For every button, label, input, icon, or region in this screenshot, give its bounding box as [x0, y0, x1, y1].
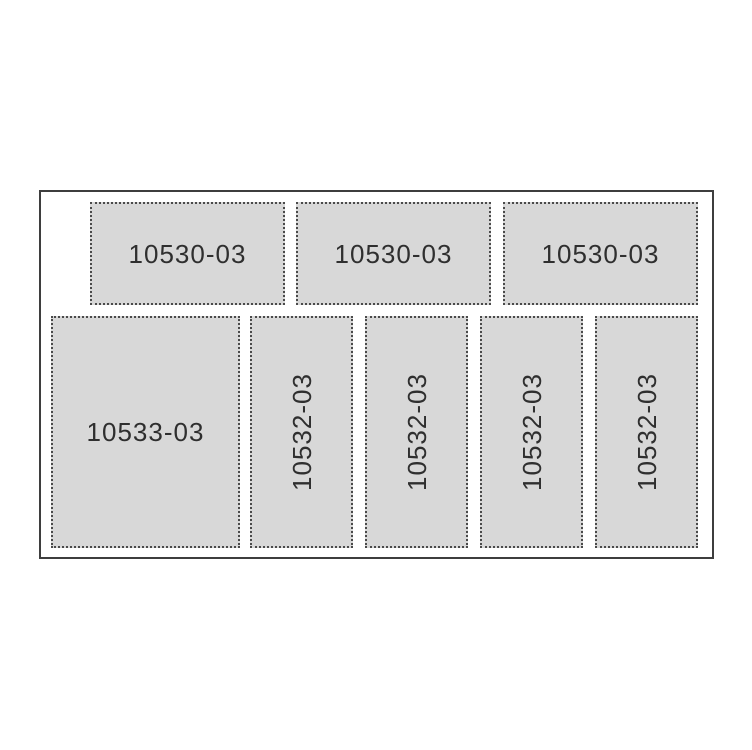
part-box-10532-3: 10532-03 — [480, 316, 583, 548]
part-box-10530-1: 10530-03 — [90, 202, 285, 305]
part-number-label: 10530-03 — [542, 241, 660, 267]
part-box-10533: 10533-03 — [51, 316, 240, 548]
part-number-label: 10530-03 — [335, 241, 453, 267]
part-number-label: 10532-03 — [289, 373, 315, 491]
part-box-10530-3: 10530-03 — [503, 202, 698, 305]
part-number-label: 10532-03 — [404, 373, 430, 491]
case-outline: 10530-03 10530-03 10530-03 10533-03 1053… — [39, 190, 714, 559]
part-box-10532-2: 10532-03 — [365, 316, 468, 548]
part-box-10532-4: 10532-03 — [595, 316, 698, 548]
part-number-label: 10532-03 — [519, 373, 545, 491]
part-number-label: 10533-03 — [87, 419, 205, 445]
part-number-label: 10530-03 — [129, 241, 247, 267]
part-number-label: 10532-03 — [634, 373, 660, 491]
part-box-10532-1: 10532-03 — [250, 316, 353, 548]
part-box-10530-2: 10530-03 — [296, 202, 491, 305]
